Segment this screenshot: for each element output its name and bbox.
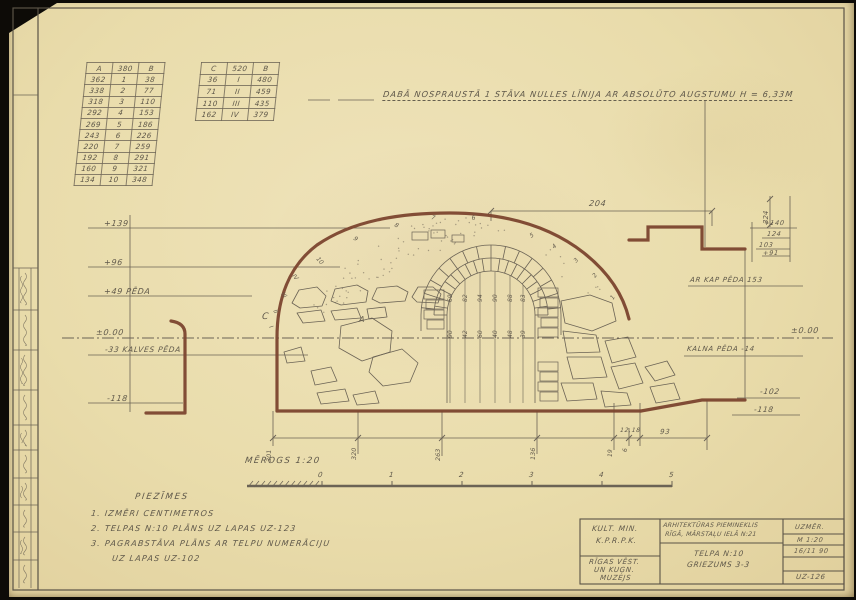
- level-label-right: -102: [759, 387, 780, 396]
- level-label-left: +49 PĒDA: [103, 287, 151, 296]
- level-label-right: KALNA PĒDA -14: [687, 345, 756, 353]
- table-cell: 10: [100, 174, 127, 185]
- level-label-left: +139: [103, 219, 129, 228]
- dimension-ticks: [270, 196, 773, 441]
- table-cell: 480: [251, 74, 278, 86]
- arch-dim-top: 83: [520, 294, 527, 302]
- table-cell: 291: [128, 152, 155, 163]
- scanned-drawing-photo: { "colors": { "paper": "#e9dcab", "penci…: [0, 0, 856, 600]
- left-strip-grid: [13, 95, 38, 588]
- bottom-dim-label: 6: [622, 448, 629, 452]
- table-cell: B: [252, 63, 279, 75]
- scale-tick-label: 4: [599, 471, 605, 479]
- svg-text-labels: 324 301 320 263 136 19 6 69 82 94 90 88 …: [265, 211, 770, 462]
- table-cell: 77: [135, 85, 162, 96]
- table-cell: 192: [76, 152, 103, 163]
- arch-dim-bottom: 90: [447, 330, 454, 338]
- level-label-right: +140: [764, 219, 786, 227]
- brick-courses: [412, 230, 558, 401]
- titleblock-sheet: UZ-126: [796, 573, 827, 581]
- titleblock-org: K.P.R.P.K.: [595, 536, 637, 545]
- scale-tick-label: 2: [459, 471, 465, 479]
- scale-tick-label: 3: [529, 471, 535, 479]
- curve-point-label: 3: [572, 257, 580, 265]
- level-label-right: +91: [763, 249, 780, 257]
- notes-line: 3. PAGRABSTĀVA PLĀNS AR TELPU NUMERĀCIJU: [90, 539, 330, 548]
- curve-point-label: 7: [430, 214, 436, 222]
- curve-point-label: 1: [609, 294, 617, 301]
- table-cell: III: [223, 97, 250, 109]
- curve-point-label: 8: [393, 222, 400, 230]
- level-label-right: ±0.00: [790, 326, 819, 335]
- titleblock-date: 16/11 90: [794, 547, 830, 555]
- arch-dim-top: 90: [492, 294, 499, 302]
- table-cell: 1: [111, 74, 138, 85]
- table-cell: 71: [198, 86, 225, 98]
- curve-point-label: 2: [591, 272, 599, 280]
- titleblock-subject: GRIEZUMS 3-3: [686, 560, 750, 569]
- table-cell: 338: [83, 85, 110, 96]
- level-label-right: -118: [753, 405, 774, 414]
- arch-dim-bottom: 40: [492, 330, 499, 338]
- table-cell: 226: [131, 130, 158, 141]
- scale-tick-label: 0: [318, 471, 324, 479]
- curve-point-roman: I: [267, 325, 274, 330]
- top-dim-label: 204: [588, 199, 606, 208]
- table-cell: 153: [133, 107, 160, 118]
- section-mark: C: [261, 312, 269, 322]
- table-cell: 36: [199, 74, 226, 86]
- section-mark: A: [358, 315, 365, 324]
- bottom-dim-label: 19: [607, 449, 614, 457]
- table-cell: 380: [112, 63, 139, 74]
- level-label-left: +96: [103, 258, 123, 267]
- scale-tick-label: 1: [389, 471, 395, 479]
- level-label-left: -33 KALVES PĒDA: [104, 345, 181, 354]
- arch-dim-bottom: 39: [520, 330, 527, 338]
- level-label-left: -118: [106, 394, 128, 403]
- titleblock-subject: TELPA N:10: [693, 549, 744, 558]
- table-cell: 362: [85, 74, 112, 85]
- table-cell: 220: [78, 141, 105, 152]
- table-cell: 435: [249, 97, 276, 109]
- titleblock-museum: MUZEJS: [600, 574, 632, 582]
- bottom-dim-label: 320: [350, 448, 358, 460]
- table-cell: 321: [127, 163, 154, 174]
- level-leader-lines: [88, 100, 803, 415]
- table-cell: 7: [104, 141, 131, 152]
- level-label-left: ±0.00: [95, 328, 124, 337]
- offset-table-c: C 520 B 36I480 71II459 110III435 162IV37…: [195, 62, 280, 121]
- table-cell: 38: [137, 74, 164, 85]
- offset-table-a: A 380 B 362138 338277 3183110 2924153 26…: [73, 62, 165, 186]
- dimension-lines: [273, 196, 770, 456]
- drawing-heading: DABĀ NOSPRAUSTĀ 1 STĀVA NULLES LĪNIJA AR…: [382, 89, 794, 101]
- titleblock-scale: M 1:20: [797, 536, 824, 544]
- bottom-dim-label: 263: [434, 449, 442, 461]
- notes-title: PIEZĪMES: [134, 492, 189, 502]
- level-label-right: 124: [767, 230, 782, 238]
- table-cell: 318: [82, 96, 109, 107]
- table-cell: 348: [126, 174, 153, 185]
- level-label-right: 103: [759, 241, 774, 249]
- table-cell: 6: [105, 130, 132, 141]
- bottom-dim-label: 136: [529, 448, 537, 460]
- table-cell: B: [138, 63, 165, 74]
- table-cell: 5: [106, 118, 133, 129]
- table-cell: 459: [250, 86, 277, 98]
- arch-dim-top: 88: [507, 294, 514, 302]
- table-cell: I: [225, 74, 252, 86]
- table-cell: 4: [107, 107, 134, 118]
- titleblock-org: KULT. MIN.: [591, 524, 638, 533]
- table-cell: 243: [79, 130, 106, 141]
- titleblock-monument: RĪGĀ, MĀRSTAĻU IELĀ N:21: [665, 531, 757, 538]
- rubble-stipple-dots: [313, 217, 600, 313]
- bottom-dim-h-label: 12,18: [620, 427, 642, 434]
- arch-dim-bottom: 48: [507, 330, 514, 338]
- table-cell: 520: [226, 63, 253, 75]
- table-cell: C: [200, 63, 227, 75]
- arch-dim-top: 94: [477, 294, 484, 302]
- table-cell: 2: [109, 85, 136, 96]
- handwritten-signatures: [21, 273, 27, 583]
- table-cell: 269: [80, 118, 107, 129]
- table-cell: 160: [75, 163, 102, 174]
- titleblock-museum: UN KUĢN.: [594, 566, 636, 574]
- table-cell: 259: [130, 141, 157, 152]
- notes-line: 2. TELPAS N:10 PLĀNS UZ LAPAS UZ-123: [90, 524, 297, 533]
- titleblock-monument: ARHITEKTŪRAS PIEMINEKLIS: [663, 522, 759, 529]
- table-cell: IV: [221, 109, 248, 121]
- table-cell: 379: [247, 109, 274, 121]
- scale-label: MĒROGS 1:20: [244, 456, 321, 466]
- curve-point-label: 9: [352, 235, 360, 243]
- table-cell: 162: [195, 109, 222, 121]
- table-cell: A: [86, 63, 113, 74]
- table-cell: 3: [108, 96, 135, 107]
- arch-dim-bottom: 60: [477, 330, 484, 338]
- table-cell: 186: [132, 118, 159, 129]
- table-cell: 8: [102, 152, 129, 163]
- curve-point-label: 5: [529, 232, 536, 240]
- notes-line: 1. IZMĒRI CENTIMETROS: [90, 509, 214, 518]
- titleblock-museum: RĪGAS VĒST.: [589, 558, 641, 566]
- scale-tick-label: 5: [669, 471, 675, 479]
- table-cell: 292: [81, 107, 108, 118]
- table-cell: II: [224, 86, 251, 98]
- arch-dim-bottom: 42: [462, 330, 469, 338]
- level-label-right: AR KAP PĒDA 153: [690, 276, 764, 284]
- table-cell: 9: [101, 163, 128, 174]
- titleblock-measure: UZMĒR.: [795, 523, 826, 531]
- bottom-dim-h-label: 93: [660, 428, 671, 436]
- table-cell: 110: [197, 97, 224, 109]
- arch-dim-top: 69: [447, 294, 454, 302]
- table-cell: 134: [74, 174, 101, 185]
- arch-dim-top: 82: [462, 294, 469, 302]
- curve-point-label: 4: [551, 243, 559, 251]
- vault-outline: [146, 213, 745, 413]
- notes-line: UZ LAPAS UZ-102: [111, 554, 201, 563]
- table-cell: 110: [134, 96, 161, 107]
- curve-point-label: 10: [314, 256, 324, 266]
